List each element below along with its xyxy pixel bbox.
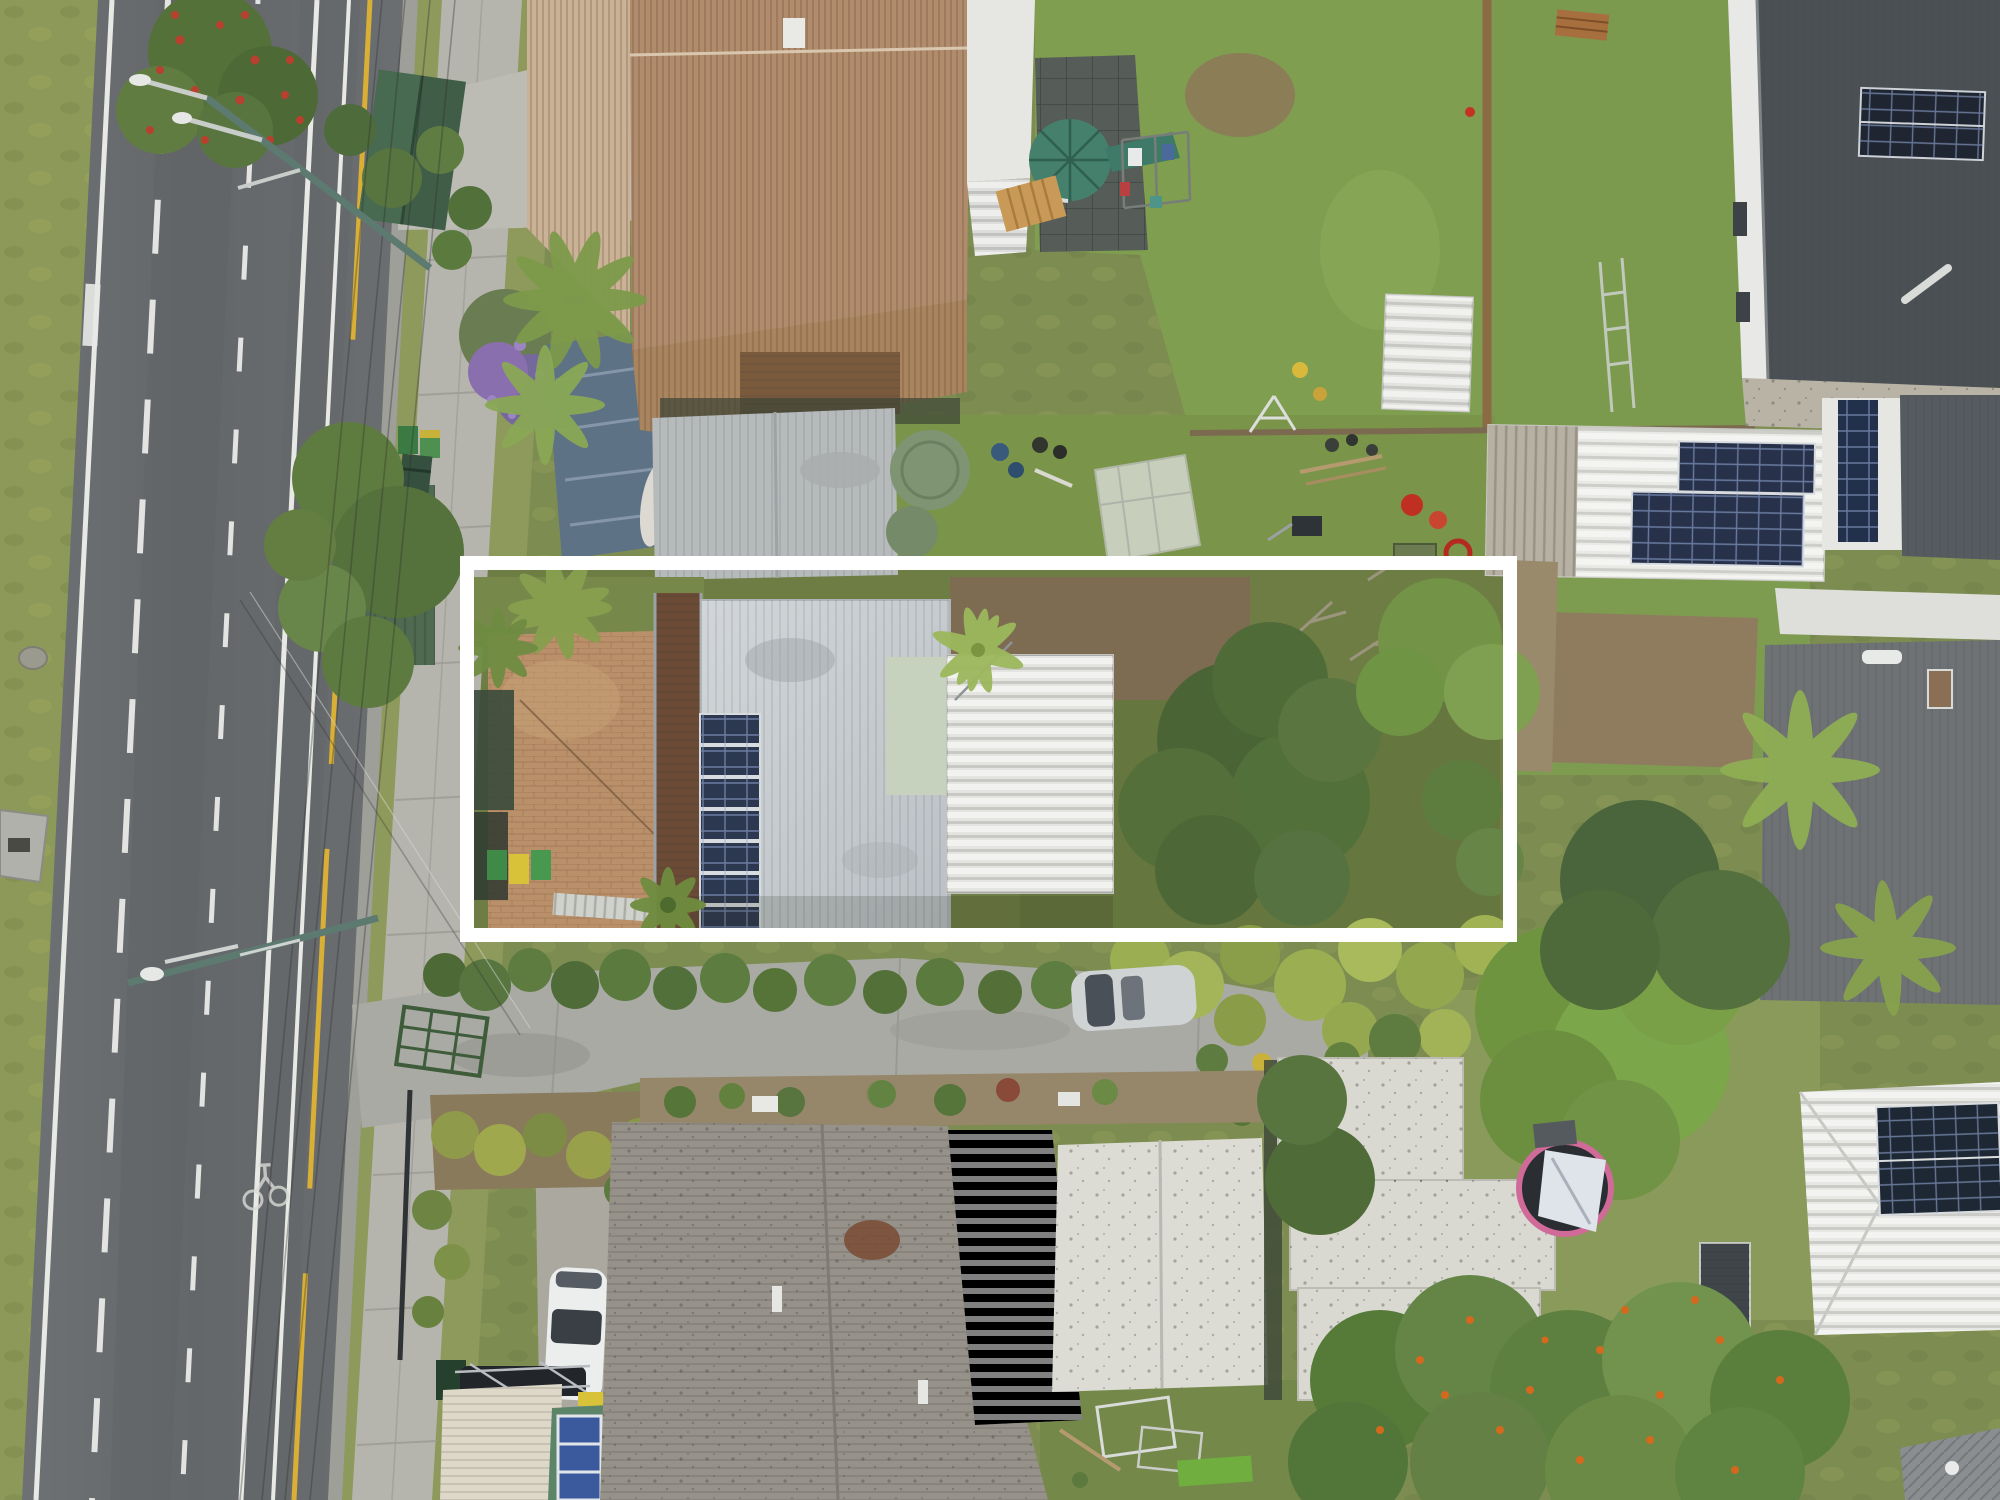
manhole xyxy=(19,647,47,669)
garage-solar-roof xyxy=(1486,425,1827,581)
pale-green-roof xyxy=(886,657,947,795)
white-shed xyxy=(1382,295,1473,412)
green-mat xyxy=(1177,1455,1253,1486)
wheelie-bin-green xyxy=(398,426,418,454)
lot-bin-green2 xyxy=(531,850,551,880)
gray-mat xyxy=(1533,1120,1577,1148)
white-roof-strip xyxy=(967,0,1035,182)
lot-bin-yellow xyxy=(509,854,529,884)
window-dark2 xyxy=(1736,292,1750,322)
red-bucket xyxy=(1401,494,1423,516)
corner-roof-vent xyxy=(1945,1461,1959,1475)
water-tank2 xyxy=(886,506,938,558)
rust-patch xyxy=(844,1220,900,1260)
car-windshield xyxy=(551,1309,603,1346)
dirt-patch-top xyxy=(1185,53,1295,137)
solar-strip-cells xyxy=(1838,400,1878,542)
dark-structure xyxy=(474,690,514,810)
silver-car-windshield xyxy=(1084,973,1116,1027)
solar-array-charcoal xyxy=(1859,88,1985,160)
old-roof-vent xyxy=(772,1286,782,1312)
roof-vent xyxy=(1862,650,1902,664)
toy-red xyxy=(1465,107,1475,117)
drain-pit xyxy=(8,838,30,852)
toy-yellow xyxy=(1292,362,1308,378)
charcoal-small-ribs xyxy=(1900,395,2000,560)
right-dirt-patch xyxy=(1545,612,1758,768)
roof-smudge xyxy=(745,638,835,682)
aerial-photo xyxy=(0,0,2000,1500)
clothes-red xyxy=(1120,182,1130,196)
charcoal-roof-ribs xyxy=(1757,0,2000,388)
cream-garage-ribs xyxy=(440,1384,562,1500)
aerial-photo-canvas xyxy=(0,0,2000,1500)
lawnmower xyxy=(1292,516,1322,536)
trampoline xyxy=(1519,1142,1611,1234)
roof-smudge2 xyxy=(842,842,918,878)
driveway-stain2 xyxy=(890,1010,1070,1050)
red-bucket2 xyxy=(1429,511,1447,529)
greenhouse xyxy=(1095,455,1200,562)
solar-array-hip xyxy=(1876,1103,2000,1215)
clothes-blue xyxy=(1162,144,1174,160)
skylight xyxy=(1928,670,1952,708)
toy-yellow2 xyxy=(1313,387,1327,401)
top-right-lawn xyxy=(1490,0,1762,430)
silver-car xyxy=(1070,964,1198,1033)
white-roof-a-fold xyxy=(1160,1140,1162,1388)
old-roof-vent2 xyxy=(918,1380,928,1404)
window-dark xyxy=(1733,202,1747,236)
clothes-white xyxy=(1128,148,1142,166)
white-band xyxy=(1775,588,2000,640)
silver-car-sunroof xyxy=(1120,975,1145,1020)
lot-bin-green xyxy=(487,850,507,880)
firewood-stack xyxy=(1555,9,1609,40)
clothes-teal xyxy=(1150,196,1162,208)
car-rear-window xyxy=(555,1271,602,1289)
gray-roof-ridge xyxy=(775,412,777,578)
eave-shadow xyxy=(690,896,1113,932)
roof-box xyxy=(1058,1092,1080,1106)
gray-roof-smudge xyxy=(800,452,880,488)
roof-vent-white xyxy=(783,18,805,48)
hip-roof-house xyxy=(1800,1082,2000,1335)
bin-yellow-lid xyxy=(420,430,440,438)
ac-unit xyxy=(752,1096,778,1112)
